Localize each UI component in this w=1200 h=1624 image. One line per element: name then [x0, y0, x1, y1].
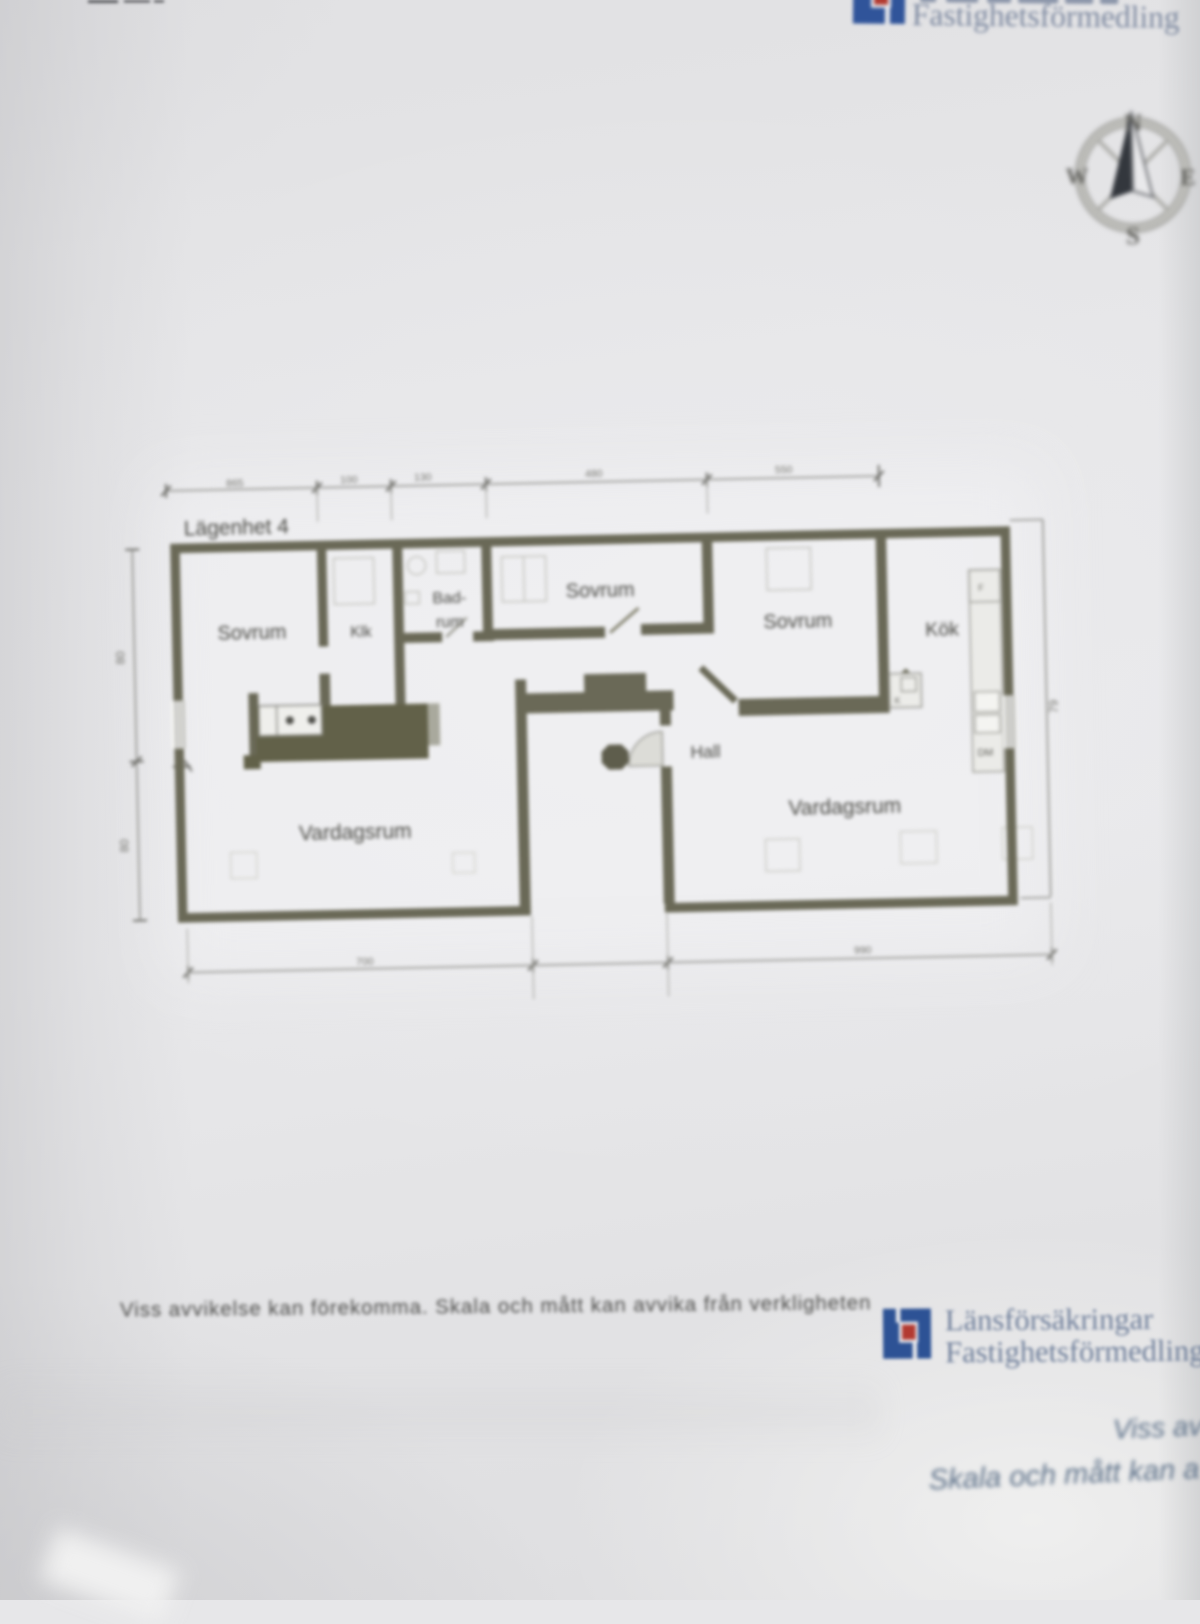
svg-text:550: 550: [775, 464, 793, 476]
svg-text:79: 79: [1047, 699, 1061, 713]
svg-text:DM: DM: [978, 748, 994, 759]
svg-text:Fastighetsförmedling: Fastighetsförmedling: [945, 1334, 1200, 1370]
svg-text:Klk: Klk: [350, 624, 372, 641]
svg-text:Sovrum: Sovrum: [566, 579, 635, 602]
svg-text:Länsförsäkringar: Länsförsäkringar: [945, 1302, 1154, 1337]
svg-text:Viss avvikelse kan förekomma.: Viss avvikelse kan förekomma. Skala och …: [120, 1291, 872, 1321]
svg-text:100: 100: [340, 474, 358, 486]
svg-text:W: W: [1066, 164, 1089, 189]
svg-text:80: 80: [117, 839, 131, 853]
svg-text:Skala och mått kan a: Skala och mått kan a: [928, 1453, 1200, 1496]
svg-text:700: 700: [356, 956, 374, 968]
svg-text:Vardagsrum: Vardagsrum: [299, 820, 412, 845]
svg-text:480: 480: [585, 468, 603, 480]
svg-text:990: 990: [854, 944, 872, 956]
svg-text:80: 80: [113, 651, 127, 665]
svg-text:E: E: [1180, 165, 1195, 190]
svg-text:130: 130: [414, 471, 432, 483]
svg-text:Hall: Hall: [690, 741, 721, 762]
svg-text:Bad-: Bad-: [432, 590, 466, 608]
svg-text:Vardagsrum: Vardagsrum: [788, 795, 901, 820]
svg-text:K: K: [894, 696, 900, 706]
svg-text:N: N: [1124, 110, 1142, 137]
svg-text:Fastighetsförmedling: Fastighetsförmedling: [912, 0, 1180, 35]
svg-text:Sovrum: Sovrum: [217, 621, 286, 644]
svg-text:Sovrum: Sovrum: [763, 610, 832, 633]
svg-text:865: 865: [226, 477, 244, 489]
svg-text:Viss av: Viss av: [1112, 1410, 1200, 1445]
svg-text:S: S: [1126, 223, 1140, 250]
svg-text:rum: rum: [436, 614, 464, 632]
svg-text:Lägenhet 4: Lägenhet 4: [184, 515, 290, 540]
svg-text:F: F: [978, 583, 984, 593]
svg-text:Kök: Kök: [925, 618, 959, 641]
